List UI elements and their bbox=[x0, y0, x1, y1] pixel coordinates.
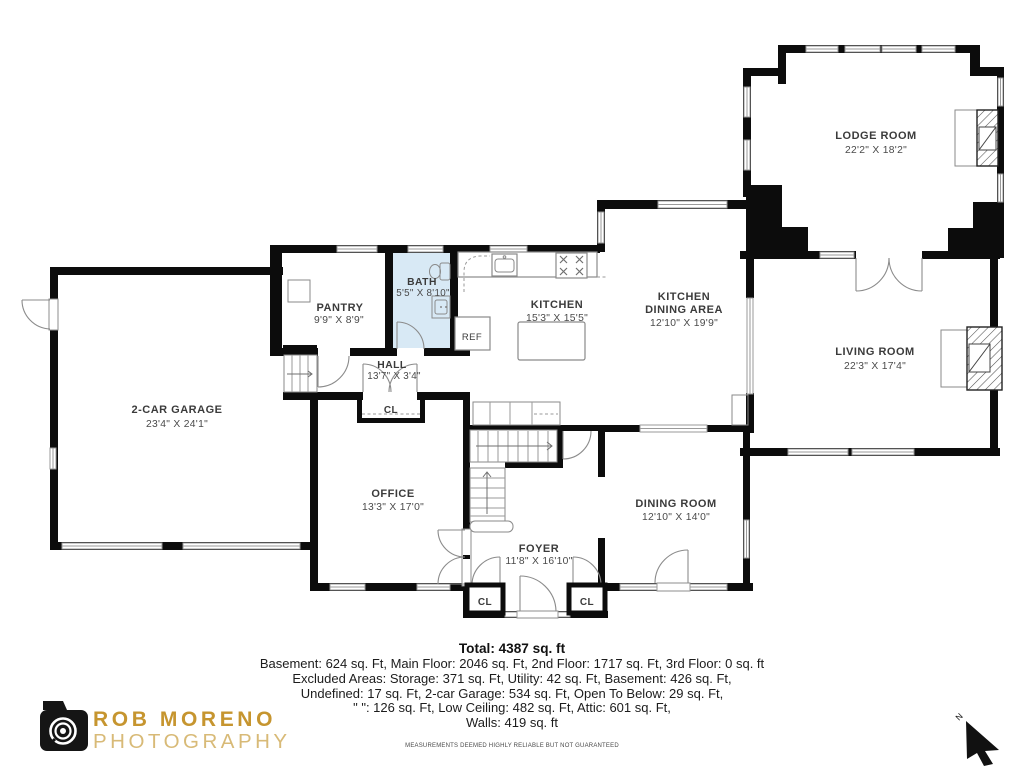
room-dims-kitchen-dining: 12'10" X 19'9" bbox=[650, 318, 718, 329]
summary-line-4: " ": 126 sq. Ft, Low Ceiling: 482 sq. Ft… bbox=[353, 700, 671, 715]
room-dims-living: 22'3" X 17'4" bbox=[844, 361, 906, 372]
room-dims-hall: 13'7" X 3'4" bbox=[367, 371, 421, 382]
floor-plan-page: LODGE ROOM 22'2" X 18'2" LIVING ROOM 22'… bbox=[0, 0, 1024, 768]
room-dims-bath: 5'5" X 8'10" bbox=[396, 288, 450, 299]
room-label-office: OFFICE bbox=[371, 488, 414, 500]
room-label-kitchen-dining-2: DINING AREA bbox=[645, 304, 723, 316]
north-label: N bbox=[953, 711, 964, 722]
room-labels: LODGE ROOM 22'2" X 18'2" LIVING ROOM 22'… bbox=[132, 130, 917, 608]
summary-line-3: Undefined: 17 sq. Ft, 2-car Garage: 534 … bbox=[301, 686, 723, 701]
room-dims-office: 13'3" X 17'0" bbox=[362, 502, 424, 513]
room-dims-garage: 23'4" X 24'1" bbox=[146, 419, 208, 430]
closet-label-hall: CL bbox=[384, 405, 398, 416]
summary-total: Total: 4387 sq. ft bbox=[459, 641, 566, 656]
north-arrow: N bbox=[953, 711, 999, 766]
living-fireplace bbox=[941, 327, 1002, 390]
fridge-label: REF bbox=[462, 332, 482, 343]
room-label-living: LIVING ROOM bbox=[835, 346, 914, 358]
summary-line-2: Excluded Areas: Storage: 371 sq. Ft, Uti… bbox=[292, 671, 731, 686]
kitchen-island bbox=[518, 322, 585, 360]
closet-label-foyer-right: CL bbox=[580, 597, 594, 608]
room-dims-foyer: 11'8" X 16'10" bbox=[505, 556, 572, 567]
room-dims-dining: 12'10" X 14'0" bbox=[642, 512, 710, 523]
area-summary: Total: 4387 sq. ft Basement: 624 sq. Ft,… bbox=[260, 641, 765, 749]
logo-subtitle: PHOTOGRAPHY bbox=[93, 730, 291, 753]
summary-line-5: Walls: 419 sq. ft bbox=[466, 715, 558, 730]
photographer-logo: ROB MORENO PHOTOGRAPHY bbox=[40, 701, 291, 753]
camera-icon bbox=[40, 701, 88, 751]
logo-name: ROB MORENO bbox=[93, 708, 276, 731]
disclaimer-text: MEASUREMENTS DEEMED HIGHLY RELIABLE BUT … bbox=[405, 743, 619, 749]
room-label-pantry: PANTRY bbox=[317, 302, 364, 314]
pantry-shaft bbox=[288, 280, 310, 302]
room-label-kitchen: KITCHEN bbox=[531, 299, 583, 311]
room-label-lodge: LODGE ROOM bbox=[835, 130, 916, 142]
floor-plan-canvas: LODGE ROOM 22'2" X 18'2" LIVING ROOM 22'… bbox=[0, 0, 1024, 768]
lodge-fireplace bbox=[955, 110, 998, 166]
room-label-hall: HALL bbox=[377, 360, 406, 371]
room-dims-kitchen: 15'3" X 15'5" bbox=[526, 313, 588, 324]
garage-staircase bbox=[284, 355, 317, 392]
closet-label-foyer-left: CL bbox=[478, 597, 492, 608]
room-dims-lodge: 22'2" X 18'2" bbox=[845, 145, 907, 156]
room-label-foyer: FOYER bbox=[519, 543, 559, 555]
summary-line-1: Basement: 624 sq. Ft, Main Floor: 2046 s… bbox=[260, 656, 765, 671]
room-label-garage: 2-CAR GARAGE bbox=[132, 404, 223, 416]
room-label-dining: DINING ROOM bbox=[635, 498, 716, 510]
room-label-bath: BATH bbox=[407, 277, 437, 288]
kitchen-sink bbox=[492, 254, 517, 276]
room-dims-pantry: 9'9" X 8'9" bbox=[314, 315, 364, 326]
room-label-kitchen-dining-1: KITCHEN bbox=[658, 291, 710, 303]
north-arrow-icon bbox=[966, 721, 999, 766]
niche-cabinet bbox=[732, 395, 748, 425]
